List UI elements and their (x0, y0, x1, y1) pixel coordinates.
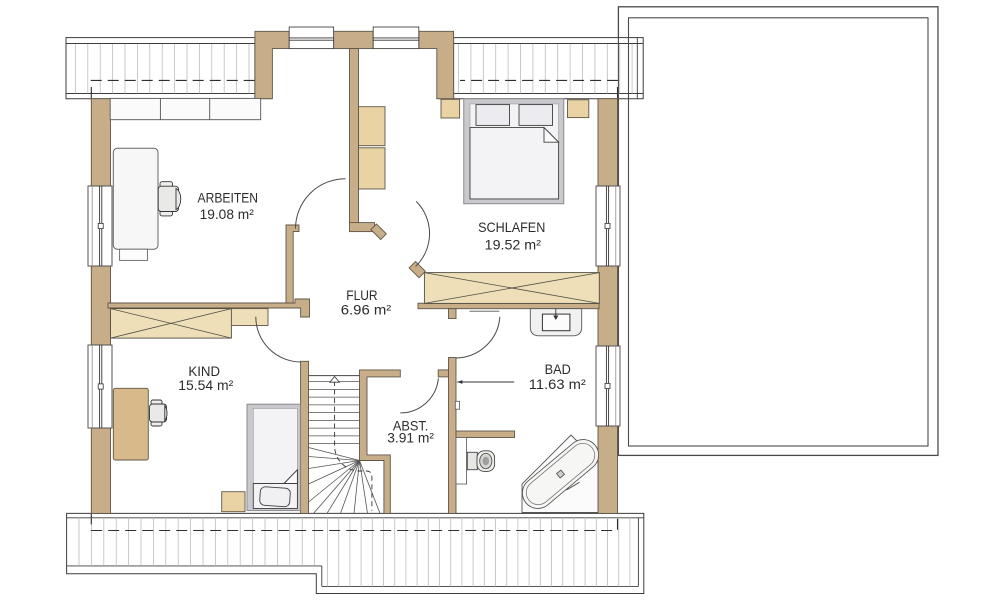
svg-text:11.63 m²: 11.63 m² (529, 376, 586, 392)
svg-text:3.91 m²: 3.91 m² (387, 429, 434, 445)
svg-text:19.08 m²: 19.08 m² (200, 206, 255, 222)
svg-text:BAD: BAD (545, 361, 571, 377)
svg-text:SCHLAFEN: SCHLAFEN (478, 219, 545, 235)
svg-text:15.54 m²: 15.54 m² (178, 377, 233, 393)
svg-text:FLUR: FLUR (346, 287, 377, 303)
svg-text:19.52 m²: 19.52 m² (485, 236, 542, 252)
svg-text:ARBEITEN: ARBEITEN (198, 189, 259, 205)
svg-text:6.96 m²: 6.96 m² (341, 302, 392, 318)
